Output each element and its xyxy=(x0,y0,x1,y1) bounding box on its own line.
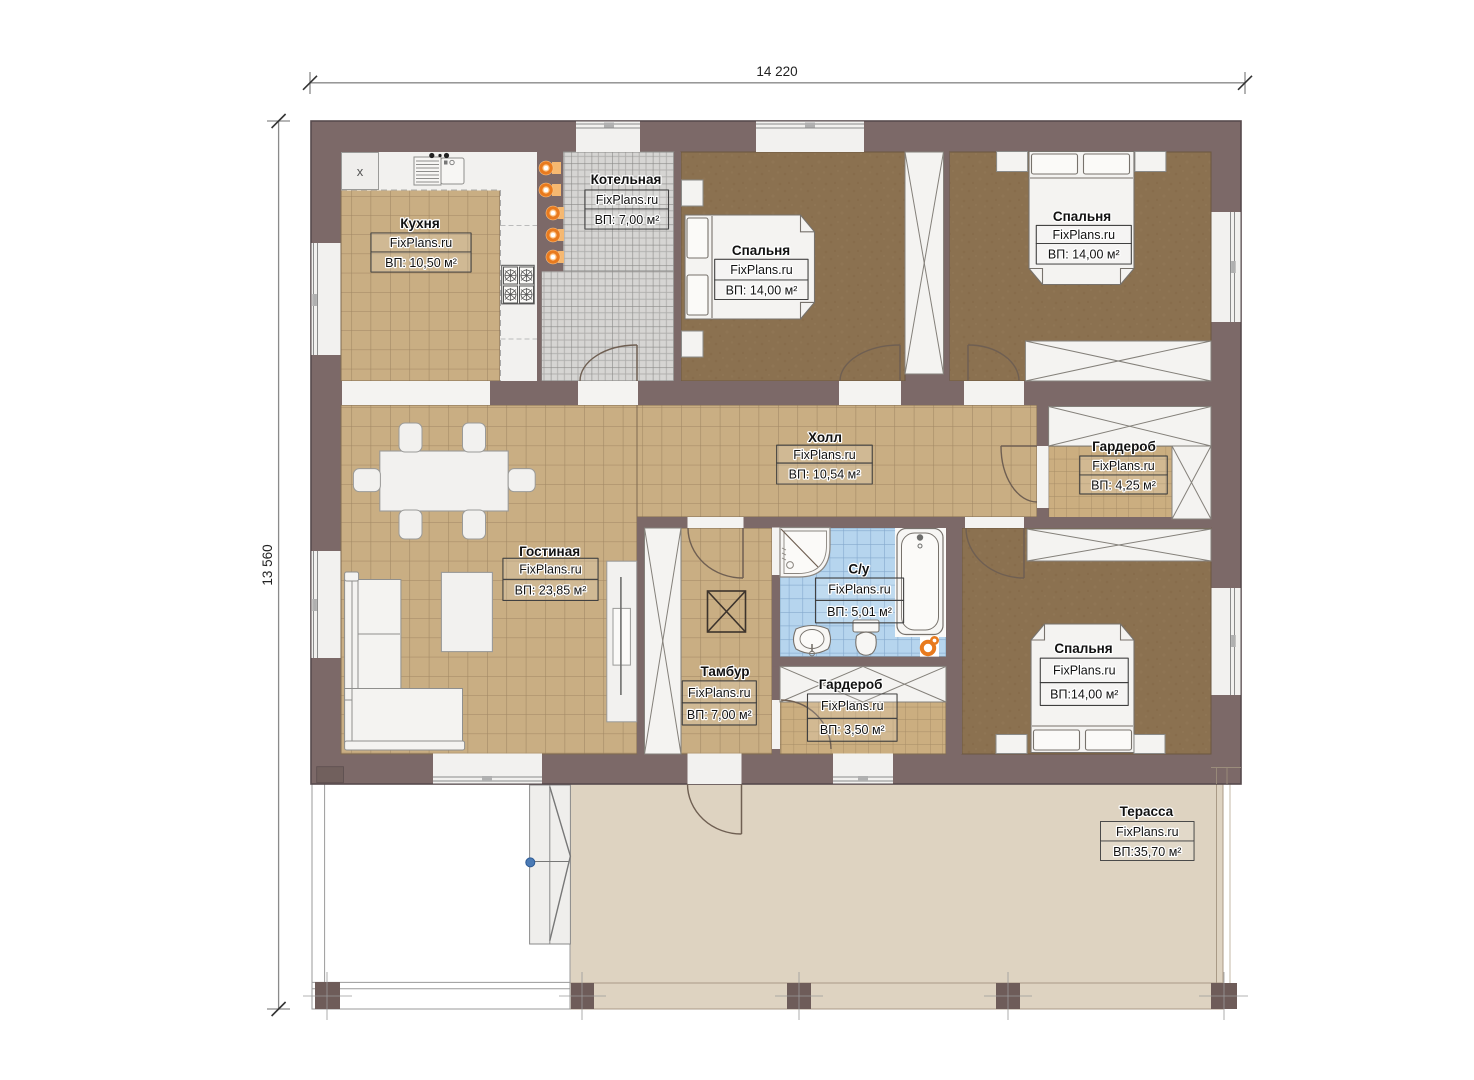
svg-text:ВП: 10,54 м²: ВП: 10,54 м² xyxy=(789,468,861,482)
svg-text:Кухня: Кухня xyxy=(400,216,439,231)
svg-text:FixPlans.ru: FixPlans.ru xyxy=(519,563,582,577)
svg-text:FixPlans.ru: FixPlans.ru xyxy=(821,699,884,713)
svg-text:Спальня: Спальня xyxy=(1053,209,1111,224)
svg-text:FixPlans.ru: FixPlans.ru xyxy=(793,448,856,462)
svg-text:С/у: С/у xyxy=(848,562,870,577)
svg-text:Гардероб: Гардероб xyxy=(819,677,883,692)
svg-text:ВП:14,00 м²: ВП:14,00 м² xyxy=(1050,688,1118,702)
svg-text:FixPlans.ru: FixPlans.ru xyxy=(730,263,793,277)
svg-text:FixPlans.ru: FixPlans.ru xyxy=(828,583,891,597)
svg-text:FixPlans.ru: FixPlans.ru xyxy=(688,686,751,700)
svg-text:ВП:35,70 м²: ВП:35,70 м² xyxy=(1113,845,1181,859)
svg-text:ВП: 4,25 м²: ВП: 4,25 м² xyxy=(1091,479,1156,493)
svg-text:ВП: 14,00 м²: ВП: 14,00 м² xyxy=(726,284,798,298)
svg-text:13 560: 13 560 xyxy=(260,544,275,585)
svg-text:FixPlans.ru: FixPlans.ru xyxy=(1053,664,1116,678)
svg-text:FixPlans.ru: FixPlans.ru xyxy=(390,236,453,250)
svg-text:Терасса: Терасса xyxy=(1120,804,1174,819)
svg-text:x: x xyxy=(357,164,364,179)
svg-text:Спальня: Спальня xyxy=(732,243,790,258)
svg-text:FixPlans.ru: FixPlans.ru xyxy=(1116,825,1179,839)
svg-text:Холл: Холл xyxy=(808,430,842,445)
svg-text:Гардероб: Гардероб xyxy=(1092,439,1156,454)
svg-text:ВП: 23,85 м²: ВП: 23,85 м² xyxy=(515,584,587,598)
svg-text:ВП: 7,00 м²: ВП: 7,00 м² xyxy=(595,213,660,227)
svg-text:14 220: 14 220 xyxy=(756,64,797,79)
svg-text:Гостиная: Гостиная xyxy=(519,544,580,559)
svg-text:Тамбур: Тамбур xyxy=(701,664,750,679)
svg-text:Котельная: Котельная xyxy=(591,172,662,187)
svg-text:FixPlans.ru: FixPlans.ru xyxy=(596,193,659,207)
svg-text:ВП: 14,00 м²: ВП: 14,00 м² xyxy=(1048,248,1120,262)
svg-text:ВП: 5,01 м²: ВП: 5,01 м² xyxy=(827,605,892,619)
svg-text:ВП: 7,00 м²: ВП: 7,00 м² xyxy=(687,708,752,722)
svg-text:ВП: 3,50 м²: ВП: 3,50 м² xyxy=(820,723,885,737)
svg-text:ВП: 10,50 м²: ВП: 10,50 м² xyxy=(385,256,457,270)
svg-text:Спальня: Спальня xyxy=(1054,641,1112,656)
svg-text:FixPlans.ru: FixPlans.ru xyxy=(1092,459,1155,473)
svg-text:FixPlans.ru: FixPlans.ru xyxy=(1053,228,1116,242)
